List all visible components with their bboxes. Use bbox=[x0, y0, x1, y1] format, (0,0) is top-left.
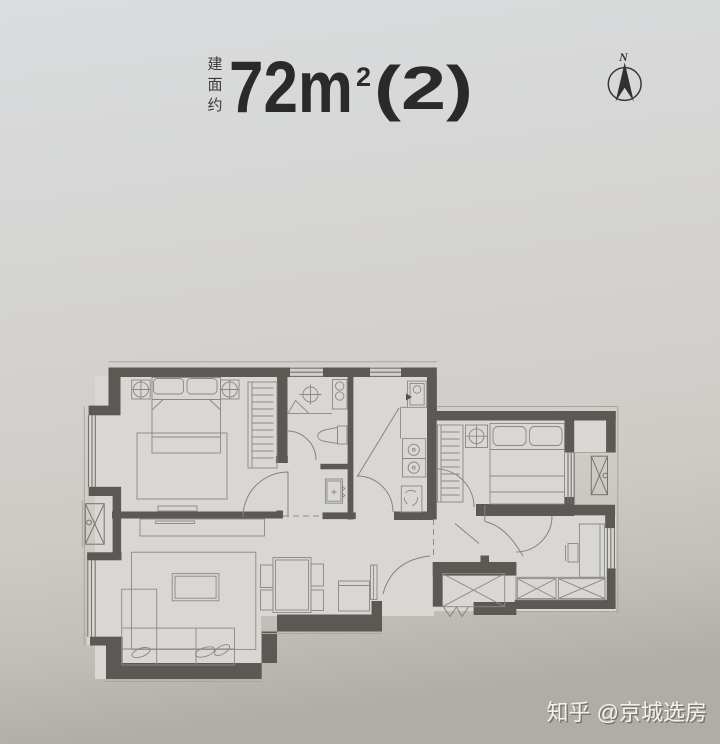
svg-text:建: 建 bbox=[207, 56, 222, 73]
svg-text:(2): (2) bbox=[374, 54, 473, 122]
svg-text:N: N bbox=[618, 50, 629, 64]
svg-text:约: 约 bbox=[207, 97, 222, 114]
svg-text:面: 面 bbox=[207, 77, 222, 94]
svg-text:知乎 @京城选房: 知乎 @京城选房 bbox=[547, 700, 707, 725]
svg-text:2: 2 bbox=[356, 62, 371, 92]
svg-text:72m: 72m bbox=[229, 47, 353, 128]
